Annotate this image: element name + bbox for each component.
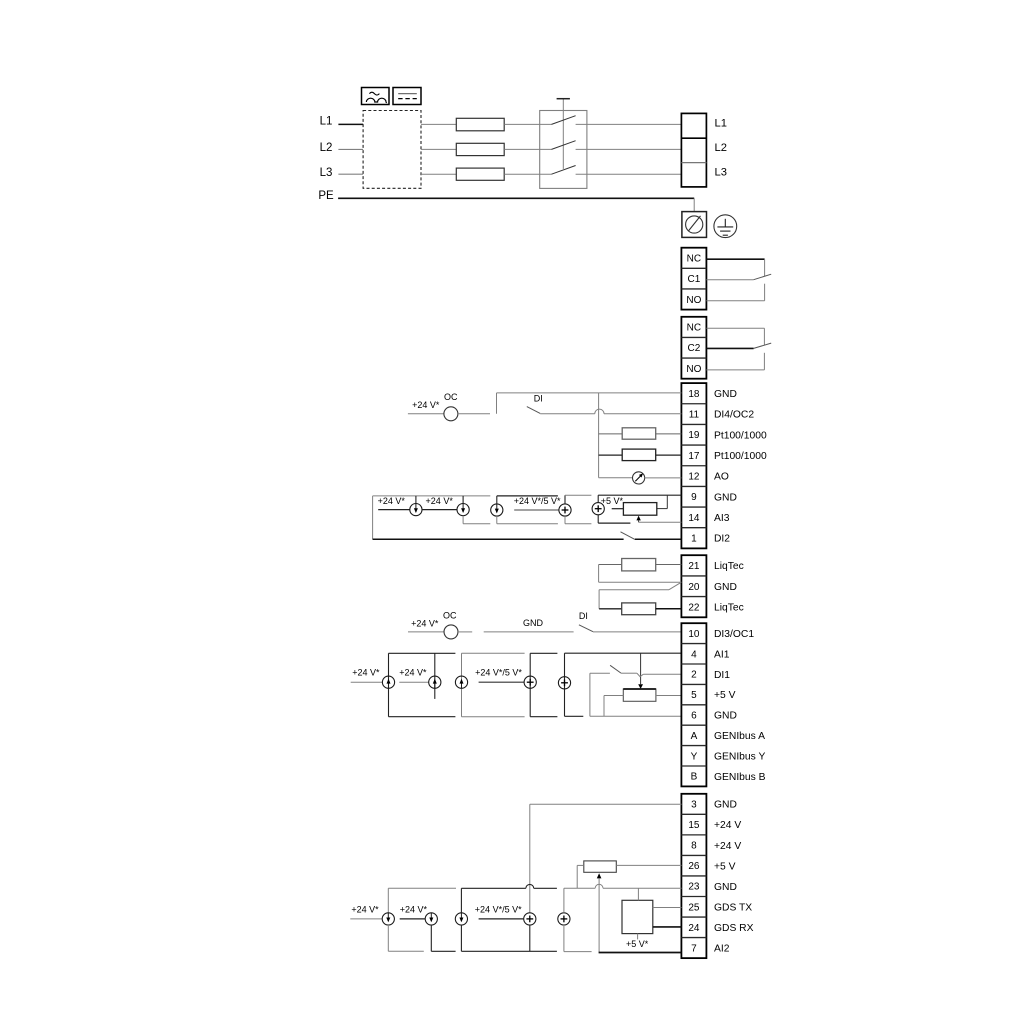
- svg-text:L1: L1: [715, 117, 727, 129]
- svg-text:DI1: DI1: [714, 670, 730, 681]
- svg-text:1: 1: [691, 534, 697, 545]
- svg-text:5: 5: [691, 690, 697, 701]
- svg-text:NO: NO: [686, 364, 701, 375]
- svg-text:C2: C2: [688, 343, 701, 354]
- svg-text:AI3: AI3: [714, 513, 730, 524]
- svg-text:L3: L3: [320, 167, 333, 179]
- svg-text:11: 11: [689, 410, 700, 421]
- svg-text:+24 V*: +24 V*: [399, 667, 427, 677]
- svg-text:GDS RX: GDS RX: [714, 923, 754, 934]
- svg-text:23: 23: [688, 882, 700, 893]
- svg-text:DI: DI: [534, 393, 543, 403]
- svg-text:+24 V*: +24 V*: [426, 496, 454, 506]
- svg-text:DI: DI: [579, 611, 588, 621]
- svg-text:L1: L1: [320, 116, 333, 128]
- svg-text:OC: OC: [444, 392, 458, 402]
- svg-text:GND: GND: [714, 882, 737, 893]
- svg-text:DI4/OC2: DI4/OC2: [714, 410, 754, 421]
- svg-text:+24 V*: +24 V*: [411, 619, 439, 629]
- svg-text:4: 4: [691, 649, 697, 660]
- svg-text:+5 V: +5 V: [714, 690, 736, 701]
- svg-text:14: 14: [688, 513, 700, 524]
- svg-text:GND: GND: [523, 618, 544, 628]
- svg-text:NO: NO: [686, 295, 701, 306]
- svg-text:NC: NC: [687, 323, 701, 334]
- svg-text:Pt100/1000: Pt100/1000: [714, 430, 767, 441]
- svg-text:+24 V*: +24 V*: [400, 905, 428, 915]
- svg-text:L3: L3: [715, 167, 727, 179]
- svg-text:+24 V*: +24 V*: [412, 400, 440, 410]
- svg-text:GND: GND: [714, 800, 737, 811]
- svg-text:7: 7: [691, 943, 697, 954]
- svg-text:6: 6: [691, 711, 697, 722]
- svg-text:+24 V: +24 V: [714, 841, 741, 852]
- svg-text:+5 V*: +5 V*: [626, 939, 649, 949]
- svg-text:20: 20: [688, 582, 700, 593]
- svg-text:NC: NC: [687, 254, 701, 265]
- svg-text:3: 3: [691, 800, 697, 811]
- svg-text:GND: GND: [714, 492, 737, 503]
- svg-text:L2: L2: [320, 142, 333, 154]
- svg-text:8: 8: [691, 841, 697, 852]
- svg-text:25: 25: [688, 902, 700, 913]
- svg-text:12: 12: [688, 472, 700, 483]
- svg-text:GND: GND: [714, 711, 737, 722]
- svg-text:PE: PE: [318, 190, 334, 202]
- svg-text:15: 15: [688, 820, 700, 831]
- svg-text:DI2: DI2: [714, 534, 730, 545]
- svg-text:+24 V*/5 V*: +24 V*/5 V*: [475, 905, 522, 915]
- svg-text:L2: L2: [715, 142, 727, 154]
- svg-text:10: 10: [688, 629, 700, 640]
- svg-text:LiqTec: LiqTec: [714, 561, 744, 572]
- svg-text:DI3/OC1: DI3/OC1: [714, 629, 754, 640]
- svg-text:24: 24: [688, 923, 700, 934]
- svg-text:18: 18: [688, 389, 700, 400]
- svg-text:AO: AO: [714, 472, 729, 483]
- svg-text:21: 21: [688, 561, 700, 572]
- svg-text:B: B: [691, 772, 698, 783]
- svg-text:A: A: [691, 731, 698, 742]
- svg-text:Y: Y: [691, 751, 698, 762]
- svg-text:LiqTec: LiqTec: [714, 603, 744, 614]
- svg-text:17: 17: [688, 451, 700, 462]
- svg-text:AI2: AI2: [714, 944, 730, 955]
- svg-text:22: 22: [688, 603, 700, 614]
- svg-text:GND: GND: [714, 582, 737, 593]
- svg-text:GENIbus Y: GENIbus Y: [714, 751, 765, 762]
- svg-text:9: 9: [691, 492, 697, 503]
- svg-text:+24 V*/5 V*: +24 V*/5 V*: [514, 496, 561, 506]
- svg-text:+24 V*: +24 V*: [352, 667, 380, 677]
- svg-text:19: 19: [688, 430, 700, 441]
- svg-text:+5 V*: +5 V*: [601, 496, 624, 506]
- svg-text:GENIbus A: GENIbus A: [714, 731, 765, 742]
- svg-text:C1: C1: [688, 274, 701, 285]
- svg-text:GDS TX: GDS TX: [714, 902, 752, 913]
- svg-text:+24 V*/5 V*: +24 V*/5 V*: [475, 667, 522, 677]
- svg-text:GENIbus B: GENIbus B: [714, 772, 766, 783]
- svg-text:OC: OC: [443, 611, 457, 621]
- svg-text:AI1: AI1: [714, 649, 730, 660]
- svg-text:+5 V: +5 V: [714, 861, 736, 872]
- svg-text:26: 26: [688, 861, 700, 872]
- svg-text:+24 V: +24 V: [714, 820, 741, 831]
- svg-text:+24 V*: +24 V*: [351, 905, 379, 915]
- svg-text:Pt100/1000: Pt100/1000: [714, 451, 767, 462]
- svg-text:GND: GND: [714, 389, 737, 400]
- svg-text:2: 2: [691, 670, 697, 681]
- svg-text:+24 V*: +24 V*: [378, 496, 406, 506]
